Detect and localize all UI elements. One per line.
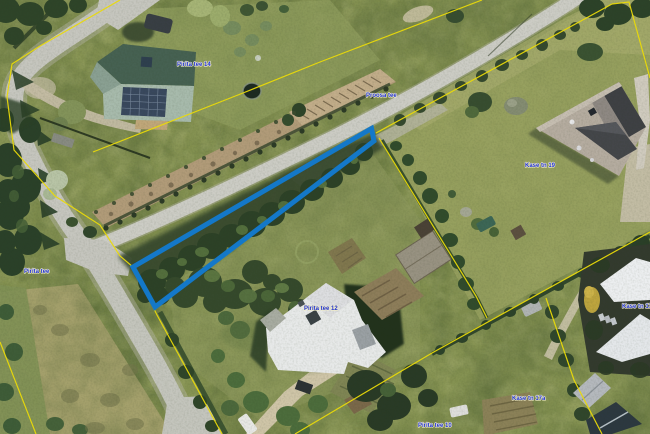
- svg-text:Pirita tee 10: Pirita tee 10: [418, 423, 452, 429]
- svg-text:Kase tn 19: Kase tn 19: [525, 163, 556, 169]
- svg-text:Pirita tee: Pirita tee: [24, 269, 50, 275]
- svg-text:Pirita tee 12: Pirita tee 12: [304, 306, 338, 312]
- svg-text:Kase tn 17: Kase tn 17: [622, 304, 650, 310]
- svg-text:Pirita tee 14: Pirita tee 14: [177, 62, 211, 68]
- svg-text:Kase tn 17a: Kase tn 17a: [512, 396, 546, 402]
- svg-text:Proosa tee: Proosa tee: [366, 93, 397, 99]
